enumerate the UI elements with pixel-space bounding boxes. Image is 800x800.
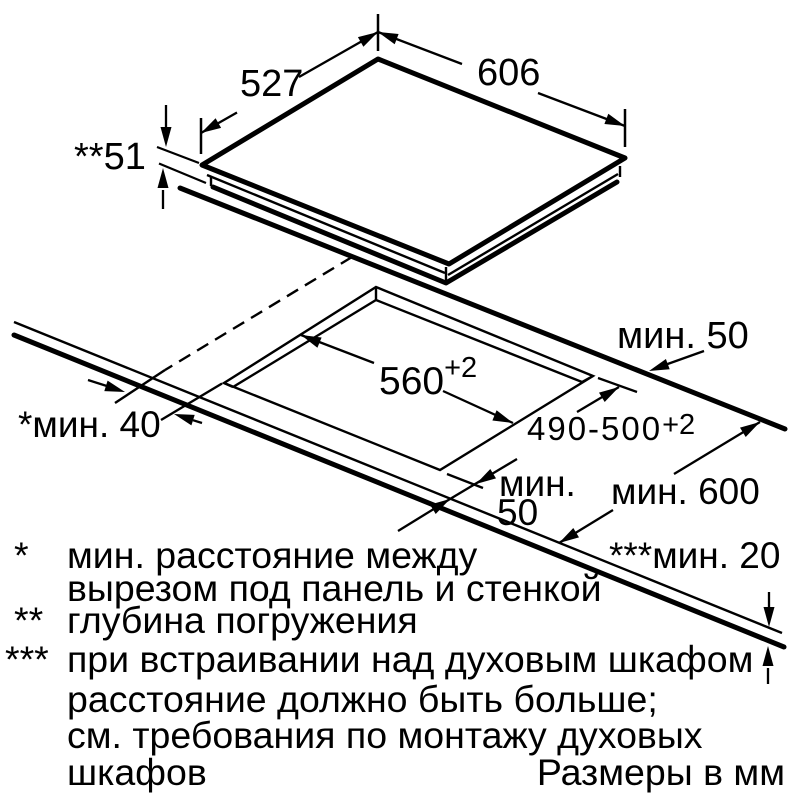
svg-text:606: 606 <box>477 52 540 94</box>
svg-text:при встраивании над духовым шк: при встраивании над духовым шкафом <box>67 638 753 680</box>
svg-text:50: 50 <box>497 492 538 533</box>
svg-text:шкафов: шкафов <box>67 751 207 793</box>
svg-text:см. требования по монтажу духо: см. требования по монтажу духовых <box>67 714 703 756</box>
svg-text:**51: **51 <box>74 136 146 178</box>
svg-text:***: *** <box>5 638 49 680</box>
svg-text:глубина погружения: глубина погружения <box>67 599 418 641</box>
svg-text:527: 527 <box>240 63 303 105</box>
svg-text:*: * <box>14 534 29 576</box>
svg-text:мин. 50: мин. 50 <box>617 315 749 357</box>
svg-text:*мин. 40: *мин. 40 <box>18 404 161 445</box>
svg-text:Размеры в мм: Размеры в мм <box>537 751 785 793</box>
svg-text:**: ** <box>14 599 43 641</box>
svg-text:мин. 600: мин. 600 <box>611 471 760 512</box>
svg-text:***мин. 20: ***мин. 20 <box>609 535 780 576</box>
